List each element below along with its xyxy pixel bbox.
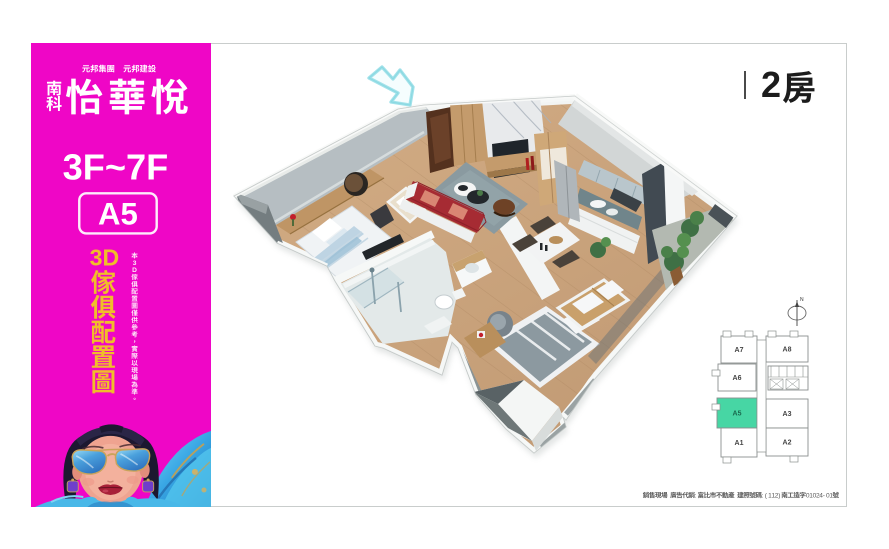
svg-text:A7: A7 [735, 347, 744, 354]
svg-text:A6: A6 [733, 375, 742, 382]
svg-text:3: 3 [133, 260, 137, 267]
svg-text:D: D [132, 267, 137, 274]
svg-text:A5: A5 [733, 411, 742, 418]
svg-text:): ) [778, 493, 780, 500]
svg-text:3D: 3D [90, 245, 120, 271]
svg-text:A5: A5 [98, 196, 138, 231]
svg-text:A3: A3 [783, 411, 792, 418]
svg-text:N: N [800, 297, 804, 303]
svg-text:A2: A2 [783, 440, 792, 447]
svg-text:A1: A1 [735, 440, 744, 447]
svg-text::: : [762, 493, 764, 500]
svg-text:1: 1 [829, 493, 833, 500]
svg-text::: : [695, 493, 697, 500]
svg-text:A8: A8 [783, 347, 792, 354]
svg-text:3F~7F: 3F~7F [63, 146, 169, 187]
svg-text:-: - [823, 493, 825, 500]
